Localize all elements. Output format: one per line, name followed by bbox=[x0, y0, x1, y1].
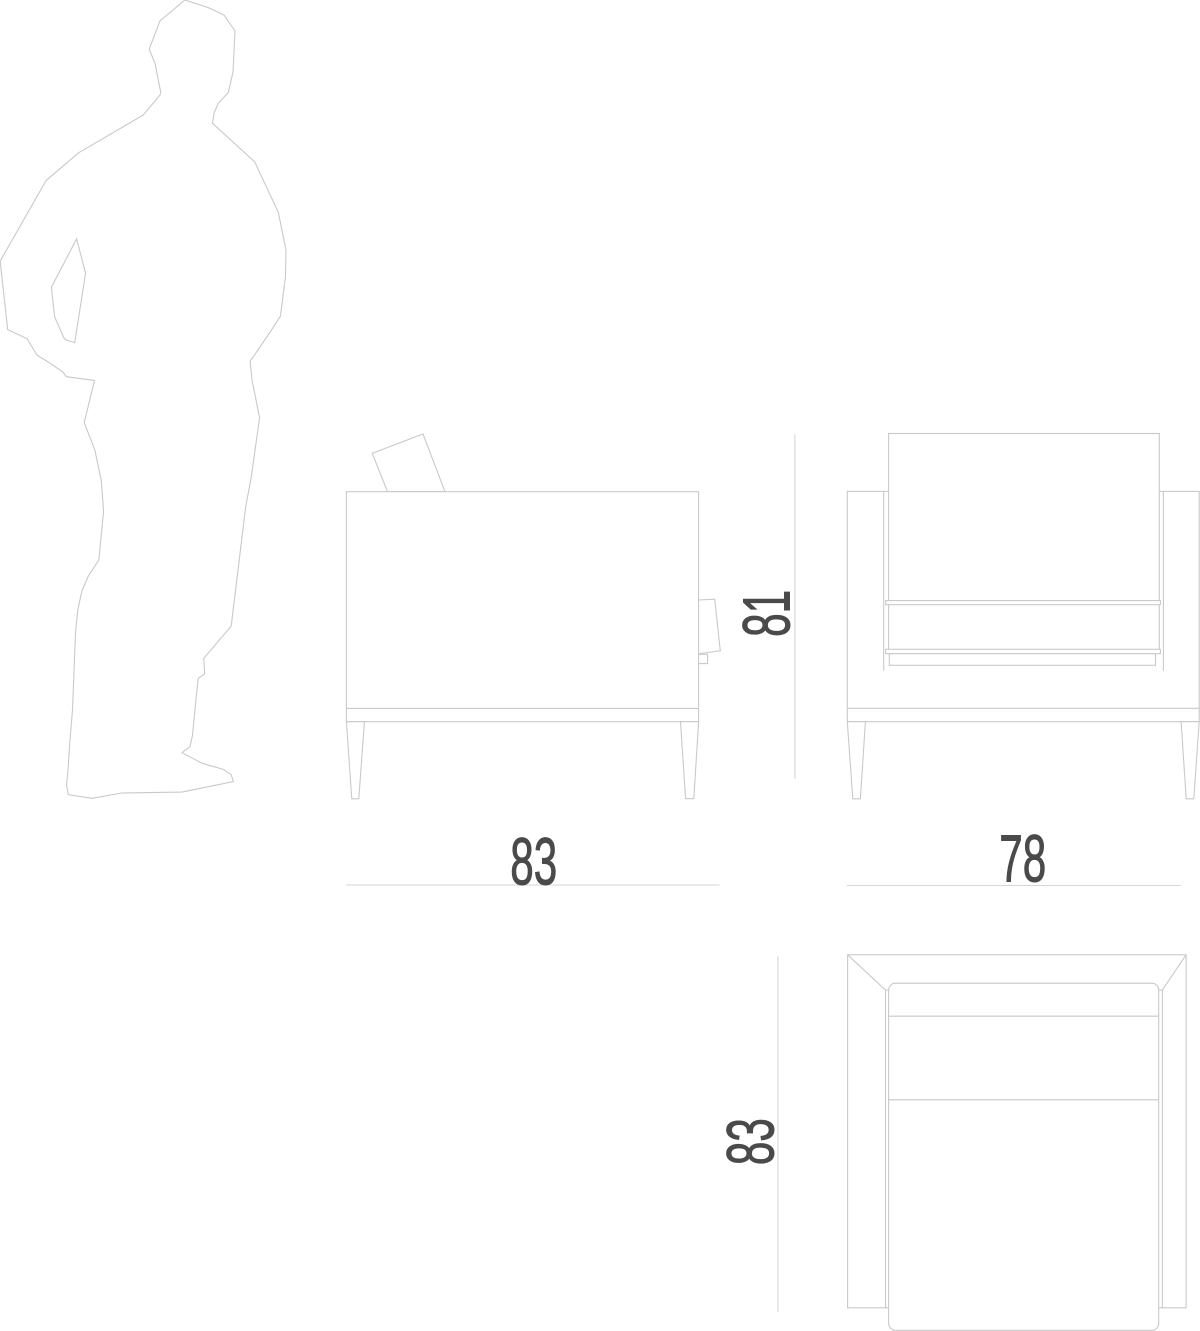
svg-text:81: 81 bbox=[728, 590, 803, 637]
svg-text:78: 78 bbox=[999, 820, 1046, 895]
svg-text:83: 83 bbox=[510, 823, 557, 898]
svg-text:83: 83 bbox=[712, 1118, 787, 1165]
